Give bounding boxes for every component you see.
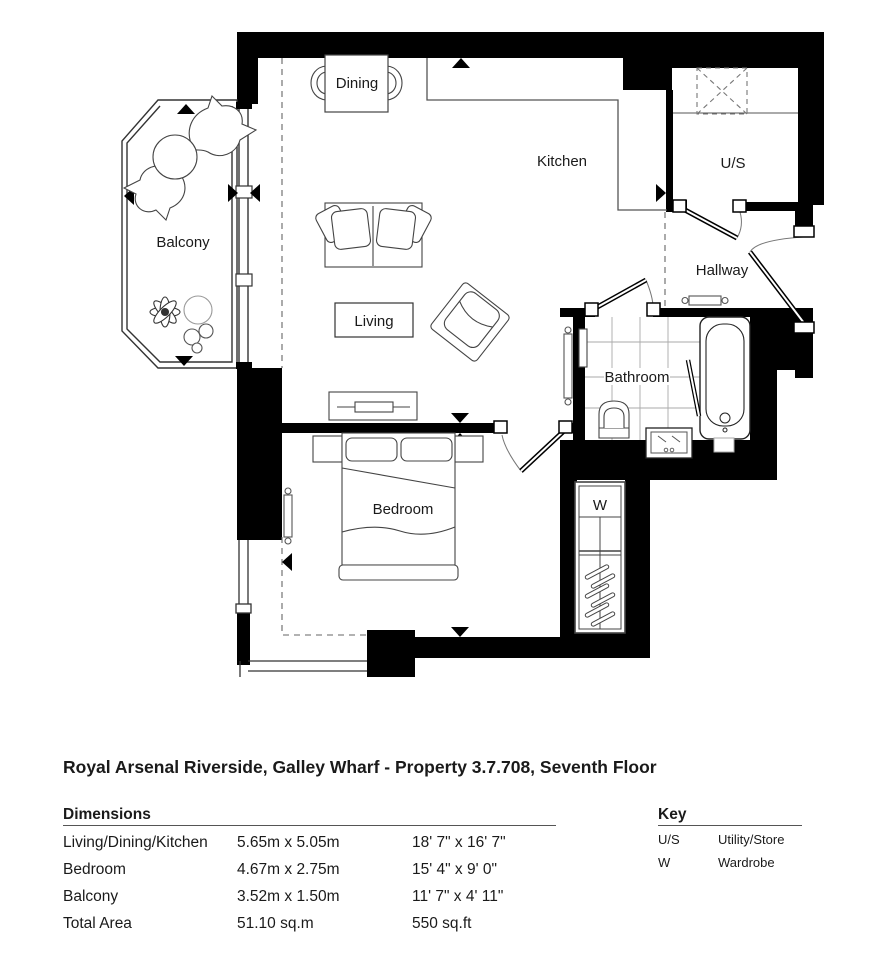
arrow-left-icon [282, 553, 292, 571]
chair-icon [311, 66, 326, 100]
wall-bedroom-divider [282, 423, 500, 433]
sink-icon [646, 428, 692, 458]
bathtub-icon [700, 317, 750, 439]
key-meaning: Utility/Store [718, 832, 784, 847]
arrow-up-icon [177, 104, 195, 114]
dimensions-heading: Dimensions [63, 806, 151, 824]
dim-metric: 5.65m x 5.05m [237, 834, 340, 852]
towel-rail-icon [579, 329, 587, 367]
toilet-icon [599, 401, 629, 438]
balcony-table-icon [153, 135, 197, 179]
bathroom-door [585, 280, 660, 316]
dim-name: Balcony [63, 888, 118, 906]
chair-icon [387, 66, 402, 100]
wall-us-bottom-right [738, 202, 798, 211]
tv-unit-icon [329, 392, 417, 420]
dim-metric: 3.52m x 1.50m [237, 888, 340, 906]
label-living: Living [354, 313, 393, 330]
label-dining: Dining [336, 75, 379, 92]
washer-icon [697, 68, 747, 114]
key-rule [658, 825, 802, 826]
label-kitchen: Kitchen [537, 153, 587, 170]
wall-bathroom-west [573, 308, 585, 440]
page-title: Royal Arsenal Riverside, Galley Wharf - … [63, 757, 657, 778]
arrow-down-icon [451, 627, 469, 637]
arrow-down-icon [451, 413, 469, 423]
key-abbr: W [658, 855, 670, 870]
wall-west-pier [237, 368, 282, 540]
label-bathroom: Bathroom [604, 369, 669, 386]
us-door [673, 200, 746, 238]
floorplan-drawing: Dining Kitchen U/S Hallway Balcony Livin… [0, 0, 888, 700]
dim-imperial: 15' 4" x 9' 0" [412, 861, 497, 879]
label-balcony: Balcony [156, 234, 210, 251]
wall-southwest-corner [237, 612, 250, 665]
wall-top-step [623, 32, 672, 90]
dimensions-rule [63, 825, 556, 826]
plant-icon [150, 296, 213, 353]
key-heading: Key [658, 806, 686, 824]
hallway-radiator-icon [682, 296, 728, 305]
key-abbr: U/S [658, 832, 680, 847]
sofa-icon [314, 203, 433, 267]
armchair-icon [429, 281, 510, 362]
label-wardrobe: W [593, 497, 608, 514]
dim-metric: 4.67m x 2.75m [237, 861, 340, 879]
floorplan-page: Dining Kitchen U/S Hallway Balcony Livin… [0, 0, 888, 956]
pillow-icon [346, 438, 397, 461]
wall-us-top [672, 32, 800, 68]
dim-name: Bedroom [63, 861, 126, 879]
wall-bathroom-east [750, 370, 777, 480]
dim-imperial: 550 sq.ft [412, 915, 471, 933]
dim-imperial: 11' 7" x 4' 11" [412, 888, 503, 906]
bedroom-radiator-icon [284, 488, 292, 544]
bathroom [579, 317, 750, 458]
wall-top [237, 32, 623, 58]
label-utility: U/S [720, 155, 745, 172]
balcony-furniture [124, 96, 256, 353]
key-meaning: Wardrobe [718, 855, 775, 870]
arrow-right-icon [656, 184, 666, 202]
arrow-up-icon [452, 58, 470, 68]
dim-imperial: 18' 7" x 16' 7" [412, 834, 506, 852]
label-hallway: Hallway [696, 262, 749, 279]
us-appliance [673, 68, 798, 114]
wall-corner-top-left [237, 32, 258, 104]
label-bedroom: Bedroom [373, 501, 434, 518]
dim-name: Total Area [63, 915, 132, 933]
wall-us-right [798, 32, 824, 205]
dim-metric: 51.10 sq.m [237, 915, 314, 933]
living-radiator-icon [564, 327, 572, 405]
wall-kitchen-us [666, 90, 673, 204]
dim-name: Living/Dining/Kitchen [63, 834, 208, 852]
arrow-down-icon [175, 356, 193, 366]
pillow-icon [401, 438, 452, 461]
wall-bottom-step [367, 630, 415, 677]
wall-wardrobe-south [560, 633, 650, 657]
bath-step [714, 438, 734, 452]
wall-wardrobe-east [625, 480, 650, 657]
